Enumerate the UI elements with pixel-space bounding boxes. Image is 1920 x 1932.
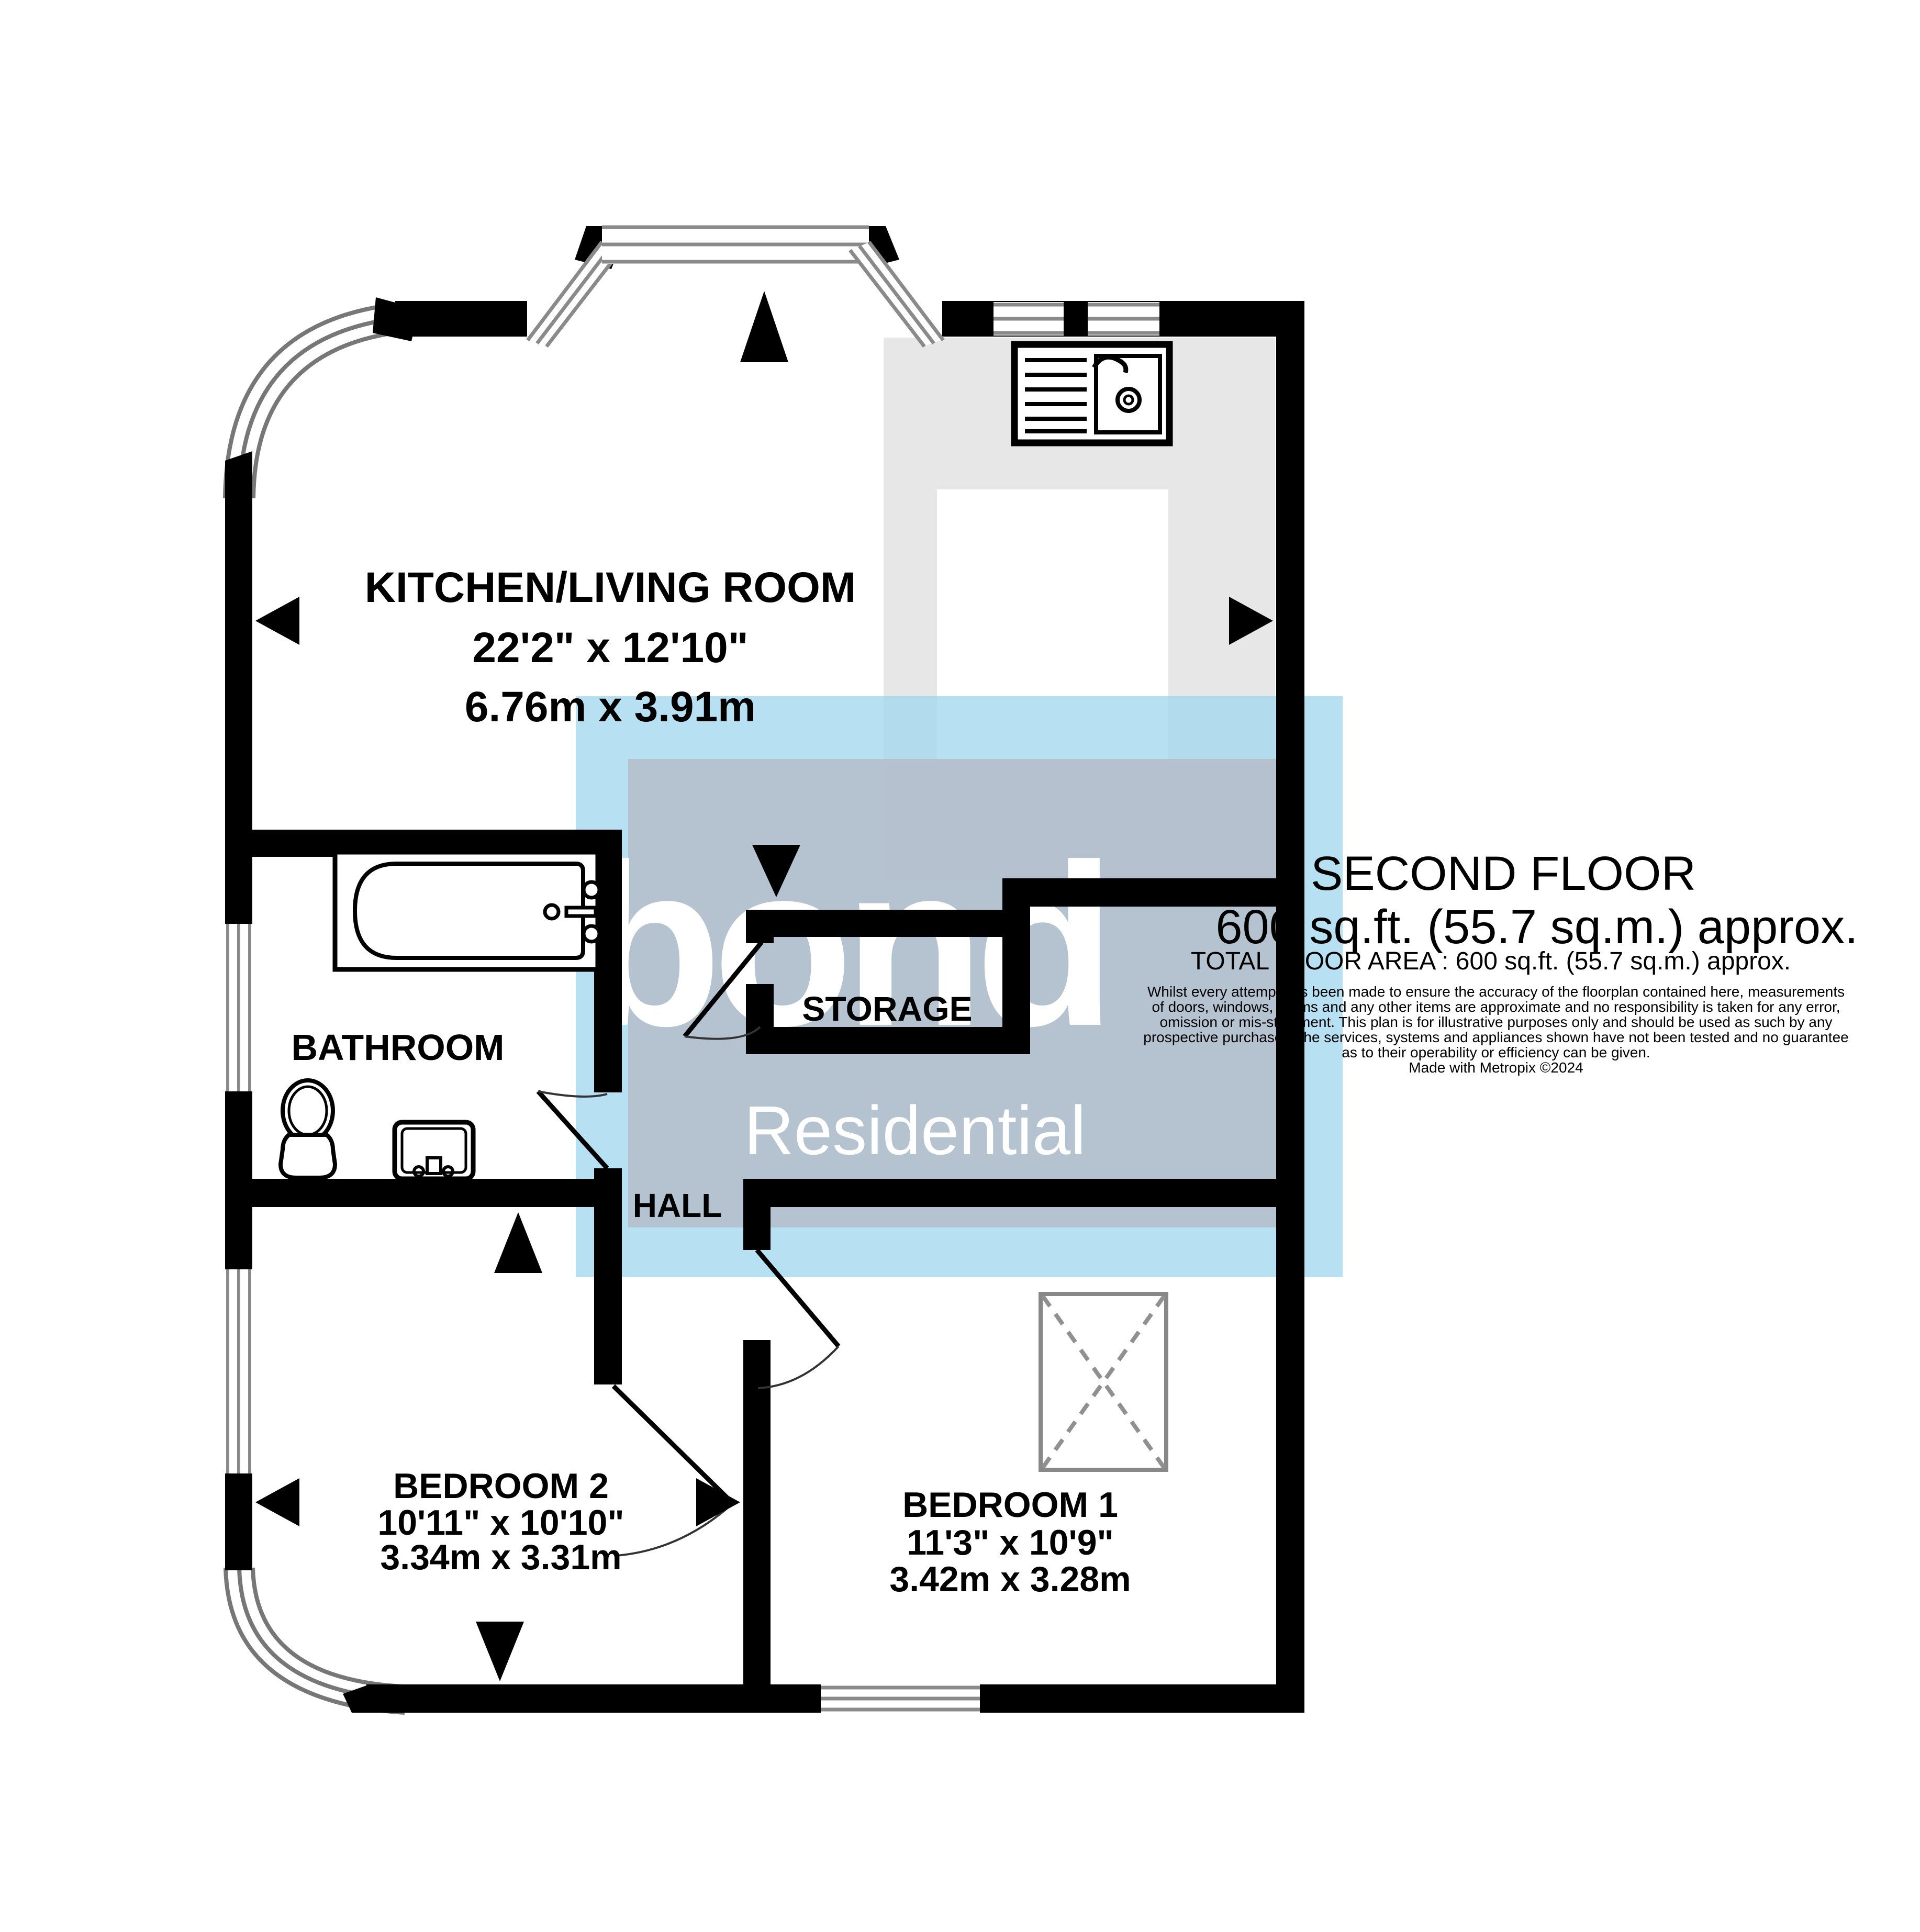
label-bathroom: BATHROOM — [292, 1027, 505, 1068]
label-bedroom1-imperial: 11'3" x 10'9" — [907, 1523, 1114, 1562]
label-bedroom2-name: BEDROOM 2 — [393, 1466, 609, 1506]
wall-segment — [746, 910, 1030, 937]
label-bedroom1-metric: 3.42m x 3.28m — [889, 1559, 1131, 1599]
label-kitchen-metric: 6.76m x 3.91m — [465, 683, 756, 731]
wall-segment — [743, 1207, 771, 1250]
total-floor-area: TOTAL FLOOR AREA : 600 sq.ft. (55.7 sq.m… — [1191, 947, 1791, 975]
label-kitchen-imperial: 22'2" x 12'10" — [472, 624, 748, 672]
label-bedroom2-imperial: 10'11" x 10'10" — [377, 1503, 624, 1543]
window-kitchen-top-2 — [1088, 302, 1159, 336]
wall-segment — [746, 1027, 1030, 1054]
wall-segment — [225, 1179, 622, 1207]
floor-area: 600 sq.ft. (55.7 sq.m.) approx. — [1215, 900, 1858, 954]
wall-segment — [746, 984, 774, 1054]
disclaimer-line: Whilst every attempt has been made to en… — [1147, 984, 1845, 1000]
label-storage: STORAGE — [802, 989, 972, 1028]
label-hall: HALL — [633, 1187, 722, 1224]
wall-segment — [743, 1179, 1304, 1207]
label-bedroom2-metric: 3.34m x 3.31m — [380, 1537, 621, 1577]
floorplan-page: bond Residential — [0, 0, 1920, 1932]
wall-segment — [743, 1340, 771, 1713]
floorplan-canvas: bond Residential — [0, 0, 1920, 1932]
window-bedroom1-bottom — [821, 1684, 980, 1713]
window-bathroom-left — [225, 924, 252, 1091]
wash-basin-icon — [395, 1122, 473, 1179]
wall-segment — [746, 910, 774, 943]
arc-end-cap — [225, 451, 252, 505]
disclaimer-line: omission or mis-statement. This plan is … — [1159, 1014, 1832, 1030]
label-bedroom1-name: BEDROOM 1 — [902, 1485, 1118, 1525]
bathtub-icon — [335, 852, 599, 969]
watermark-tagline: Residential — [744, 1092, 1086, 1169]
metropix-credit: Made with Metropix ©2024 — [1409, 1059, 1583, 1076]
disclaimer-line: of doors, windows, rooms and any other i… — [1152, 999, 1840, 1015]
window-kitchen-top-1 — [994, 302, 1064, 336]
toilet-icon — [281, 1080, 335, 1178]
kitchen-sink-icon — [1014, 344, 1169, 443]
disclaimer-line: prospective purchaser. The services, sys… — [1143, 1029, 1848, 1045]
window-bedroom2-left — [225, 1269, 252, 1473]
disclaimer-line: as to their operability or efficiency ca… — [1342, 1044, 1650, 1060]
floor-title: SECOND FLOOR — [1311, 847, 1696, 900]
label-kitchen-name: KITCHEN/LIVING ROOM — [365, 564, 856, 611]
